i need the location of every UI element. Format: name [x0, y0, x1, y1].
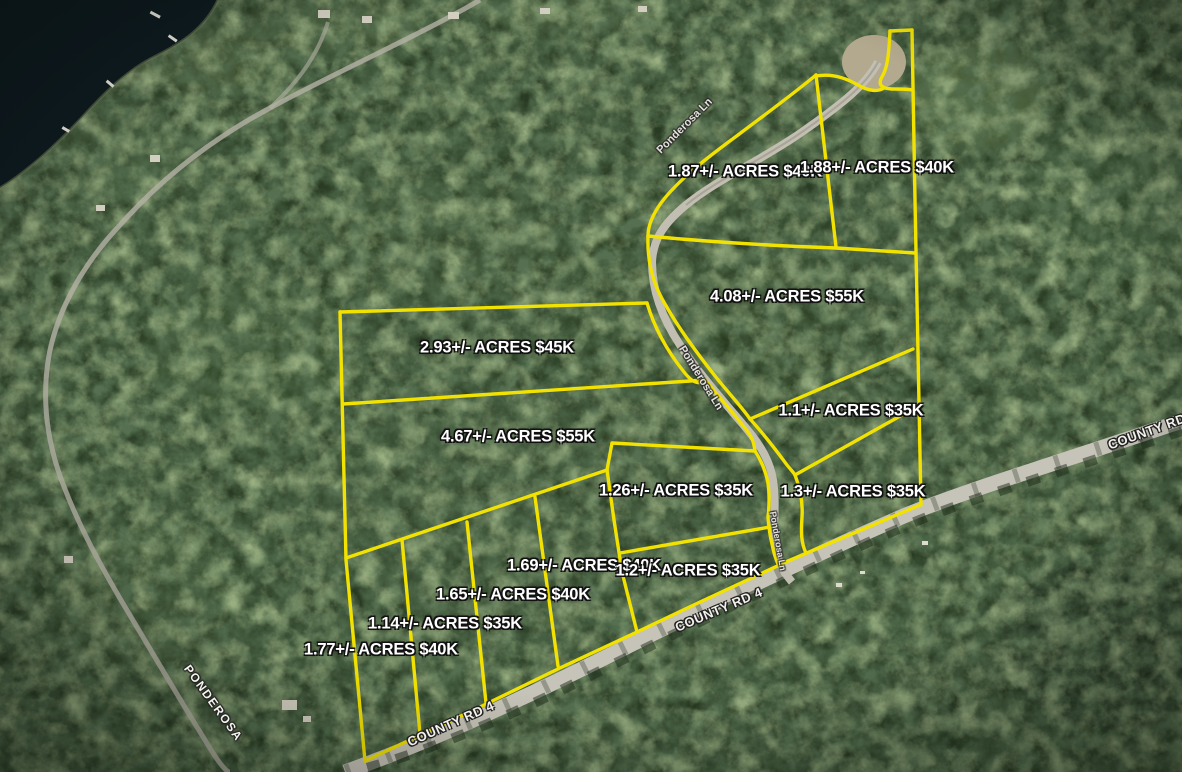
- parcel-label-1-26: 1.26+/- ACRES $35K: [599, 482, 753, 501]
- parcel-label-2-93: 2.93+/- ACRES $45K: [420, 339, 574, 358]
- parcel-label-1-87: 1.87+/- ACRES $40K: [668, 163, 822, 182]
- parcel-label-1-2: 1.2+/- ACRES $35K: [615, 562, 760, 581]
- satellite-map[interactable]: 1.87+/- ACRES $40K 1.88+/- ACRES $40K 4.…: [0, 0, 1182, 772]
- satellite-imagery: [0, 0, 1182, 772]
- parcel-label-4-08: 4.08+/- ACRES $55K: [710, 288, 864, 307]
- parcel-label-1-3: 1.3+/- ACRES $35K: [780, 483, 925, 502]
- parcel-label-1-14: 1.14+/- ACRES $35K: [368, 615, 522, 634]
- parcel-label-1-65: 1.65+/- ACRES $40K: [436, 586, 590, 605]
- parcel-label-1-77: 1.77+/- ACRES $40K: [304, 641, 458, 660]
- parcel-label-1-88: 1.88+/- ACRES $40K: [800, 159, 954, 178]
- parcel-label-4-67: 4.67+/- ACRES $55K: [441, 428, 595, 447]
- parcel-label-1-1: 1.1+/- ACRES $35K: [778, 402, 923, 421]
- vignette: [0, 0, 1182, 772]
